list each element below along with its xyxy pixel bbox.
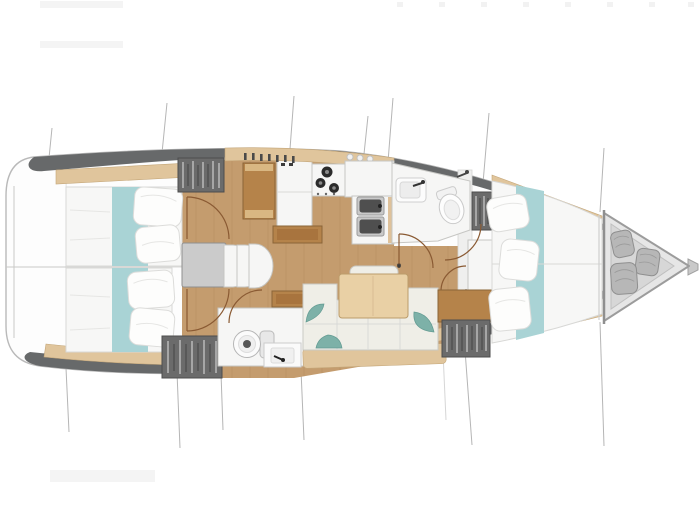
burner (322, 167, 333, 178)
hanging-locker (178, 158, 224, 192)
hanging-locker-aft-starboard (162, 336, 222, 378)
aft-cabin-port (66, 186, 183, 267)
sail-locker (599, 210, 689, 324)
pillow (133, 186, 184, 227)
sail-bag (634, 248, 660, 277)
galley-counter (345, 161, 394, 197)
watermark-bar (50, 470, 155, 482)
galley-sink (357, 217, 384, 236)
faucet (378, 225, 382, 229)
watermark-bar (40, 41, 123, 48)
burner (329, 183, 339, 193)
hanging-locker-aft-port (178, 158, 224, 192)
chart-table (277, 160, 312, 226)
sail-bag (610, 262, 638, 295)
watermark-dashes (397, 2, 694, 7)
nav-cabinet (273, 226, 322, 243)
pillow (127, 270, 175, 310)
nav-seat-bottom (245, 210, 273, 218)
section-line (388, 98, 393, 162)
section-line (600, 322, 604, 446)
section-line (600, 148, 604, 212)
pillow (135, 224, 182, 264)
section-line (364, 116, 368, 154)
section-line (66, 368, 69, 432)
pillow (488, 286, 532, 332)
section-line (162, 103, 167, 153)
section-line (49, 128, 52, 158)
bow-fitting (688, 259, 698, 275)
section-line (301, 370, 304, 440)
head-washbasin (264, 343, 301, 367)
galley-sink (357, 197, 384, 215)
nav-seat-top (245, 164, 273, 171)
aft-head (218, 308, 304, 367)
stove (312, 164, 345, 196)
saloon-table (339, 274, 408, 318)
watermark-bar (40, 1, 123, 8)
section-line (290, 96, 294, 149)
latch (289, 163, 293, 166)
latch (281, 163, 285, 166)
hanging-locker-forward-starboard (442, 320, 490, 357)
aft-cabin-starboard (66, 268, 175, 352)
head-washbasin (396, 178, 426, 202)
burner (316, 178, 326, 188)
faucet (378, 204, 382, 208)
section-line (483, 113, 489, 183)
companionway-steps (182, 243, 273, 288)
section-line (465, 350, 472, 445)
section-line (177, 372, 180, 448)
steps-platform (182, 243, 226, 287)
section-line (221, 373, 223, 430)
pillow (498, 238, 540, 282)
cabin-bulkhead-panel (438, 290, 492, 322)
pillow (485, 193, 530, 233)
yacht-floorplan (0, 0, 700, 528)
hanging-locker (442, 320, 490, 357)
